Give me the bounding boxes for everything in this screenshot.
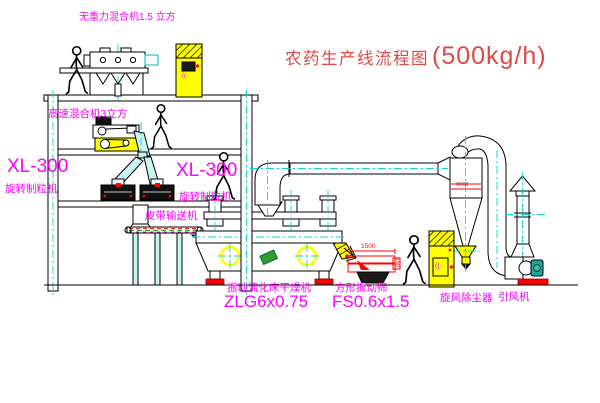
control-cabinet-right [429,231,454,287]
label-fan: 引风机 [498,292,530,303]
control-cabinet-top [176,44,202,97]
rotary-granulators [101,179,174,200]
belt-conveyor [125,227,203,285]
dimension-cyclone-diameter: Φ600 [456,183,468,188]
cyclone-dust-collector [450,136,506,272]
air-duct [250,157,450,220]
label-granulator-model-right: XL-300 [176,161,237,180]
dimension-screen-length: 1500 [361,244,375,251]
title-capacity: (500kg/h) [432,42,547,71]
label-gravity-mixer: 无重力混合机1.5 立方 [79,13,176,23]
building-column-right [241,90,252,295]
label-screen-model: FS0.6x1.5 [332,293,410,310]
process-flow-drawing: 农药生产线流程图 (500kg/h) 无重力混合机1.5 立方 高速混合机3立方… [0,0,600,403]
person-figure-ground [404,236,425,284]
drawing-title: 农药生产线流程图 (500kg/h) [285,42,547,71]
label-granulator-model-left: XL-300 [7,157,68,176]
cabinet-top-glyph: ((· [182,73,188,79]
person-figure-mixer-floor [152,105,172,149]
label-dryer-model: ZLG6x0.75 [224,293,308,310]
vibrating-screen [344,246,400,283]
label-belt-conveyor: 皮带输送机 [145,211,198,222]
induced-draft-fan [505,257,548,285]
label-granulator-name-left: 旋转制粒机 [5,184,58,195]
exhaust-stack [505,172,545,262]
label-cyclone: 旋风除尘器 [440,293,493,304]
cabinet-right-glyph: ((· [435,263,442,270]
dimension-screen-outlet: 550 [394,257,400,267]
title-text: 农药生产线流程图 [285,45,429,69]
label-high-speed-mixer: 高速混合机3立方 [48,109,127,120]
label-granulator-name-right: 旋转制粒机 [179,192,232,203]
